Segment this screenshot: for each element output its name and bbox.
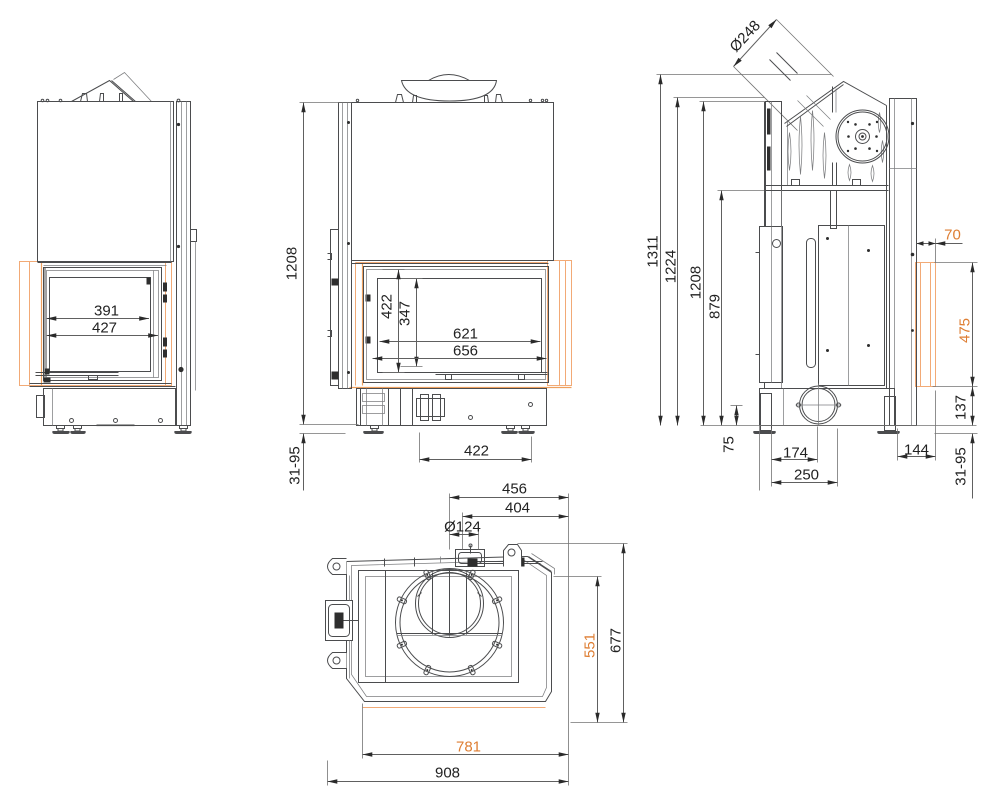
svg-text:144: 144	[904, 442, 929, 459]
svg-text:31-95: 31-95	[953, 447, 970, 485]
svg-text:551: 551	[582, 633, 599, 658]
svg-text:31-95: 31-95	[287, 446, 304, 484]
svg-text:475: 475	[957, 318, 974, 343]
svg-text:1311: 1311	[645, 235, 662, 267]
svg-text:1208: 1208	[284, 247, 301, 280]
svg-text:427: 427	[92, 320, 117, 337]
svg-text:Ø124: Ø124	[444, 519, 481, 536]
svg-text:75: 75	[721, 436, 738, 453]
svg-text:422: 422	[379, 294, 396, 319]
svg-text:137: 137	[953, 395, 970, 420]
svg-text:422: 422	[464, 443, 489, 460]
svg-text:879: 879	[707, 294, 724, 319]
svg-text:908: 908	[435, 765, 460, 782]
svg-text:174: 174	[783, 445, 808, 462]
svg-text:656: 656	[453, 343, 478, 360]
svg-text:347: 347	[397, 301, 414, 326]
svg-text:404: 404	[505, 500, 530, 517]
svg-text:456: 456	[502, 481, 527, 498]
svg-text:677: 677	[608, 628, 625, 653]
svg-text:250: 250	[794, 467, 819, 484]
svg-text:391: 391	[94, 303, 119, 320]
svg-text:781: 781	[456, 739, 481, 756]
svg-text:70: 70	[944, 227, 961, 244]
svg-text:621: 621	[453, 326, 478, 343]
svg-text:1208: 1208	[688, 266, 705, 299]
svg-text:1224: 1224	[663, 250, 680, 283]
